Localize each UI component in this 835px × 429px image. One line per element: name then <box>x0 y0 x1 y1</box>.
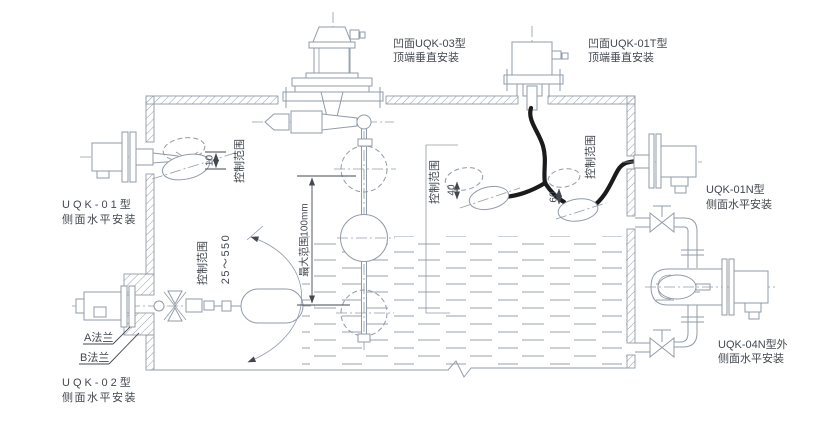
dim-40-label: 40 <box>447 184 458 196</box>
uqk-installation-diagram: 10 控制范围 UQK-01型 侧面水平安装 控制范围 25～550 <box>0 0 835 429</box>
uqk04n-mount-label: 侧面水平安装 <box>718 351 784 365</box>
travel-range-label: 25～550 <box>220 234 232 285</box>
dim-10-label: 10 <box>205 155 216 167</box>
float-cables <box>501 108 636 207</box>
uqk02-model-label: UQK-02型 <box>62 375 134 389</box>
uqk04n-assembly: UQK-04N型外 侧面水平安装 <box>635 206 788 365</box>
uqk01n-mount-label: 侧面水平安装 <box>706 197 772 211</box>
uqk01t-model-label: 凹面UQK-01T型 <box>588 36 667 50</box>
max-range-label: 最大范围100mm <box>298 203 311 276</box>
uqk01-model-label: UQK-01型 <box>62 197 134 211</box>
cable-float-pair-right: 60 控制范围 <box>547 135 606 224</box>
control-range-label-pair-right: 控制范围 <box>583 135 597 179</box>
flange-b-label: B法兰 <box>80 350 109 364</box>
uqk02-mount-label: 侧面水平安装 <box>62 390 137 404</box>
valve-bottom-icon <box>650 330 674 357</box>
uqk04n-model-label: UQK-04N型外 <box>718 337 788 351</box>
uqk01t-mount-label: 顶端垂直安装 <box>588 50 654 64</box>
control-range-label-uqk02: 控制范围 <box>195 241 209 285</box>
uqk01-mount-label: 侧面水平安装 <box>62 212 137 226</box>
uqk01-dimension: 10 <box>205 152 227 169</box>
cable-junction <box>542 180 547 185</box>
uqk02-assembly: 控制范围 25～550 A法兰 B法兰 UQK-02型 侧面水平安装 <box>62 226 315 404</box>
uqk03-model-label: 凹面UQK-03型 <box>393 36 466 50</box>
valve-top-icon <box>650 206 674 232</box>
uqk02-float <box>241 289 303 323</box>
uqk03-mount-label: 顶端垂直安装 <box>393 50 459 64</box>
uqk01n-assembly: UQK-01N型 侧面水平安装 <box>622 134 772 211</box>
uqk01n-model-label: UQK-01N型 <box>706 182 765 196</box>
diagram-canvas: 10 控制范围 UQK-01型 侧面水平安装 控制范围 25～550 <box>0 0 835 429</box>
flange-a-label: A法兰 <box>84 330 113 344</box>
control-range-label-pair-left: 控制范围 <box>427 160 441 204</box>
dim-60-label: 60 <box>549 191 560 203</box>
flange-b-plate <box>129 286 135 327</box>
control-range-label-uqk01: 控制范围 <box>232 139 246 183</box>
flange-a-plate <box>121 286 127 327</box>
